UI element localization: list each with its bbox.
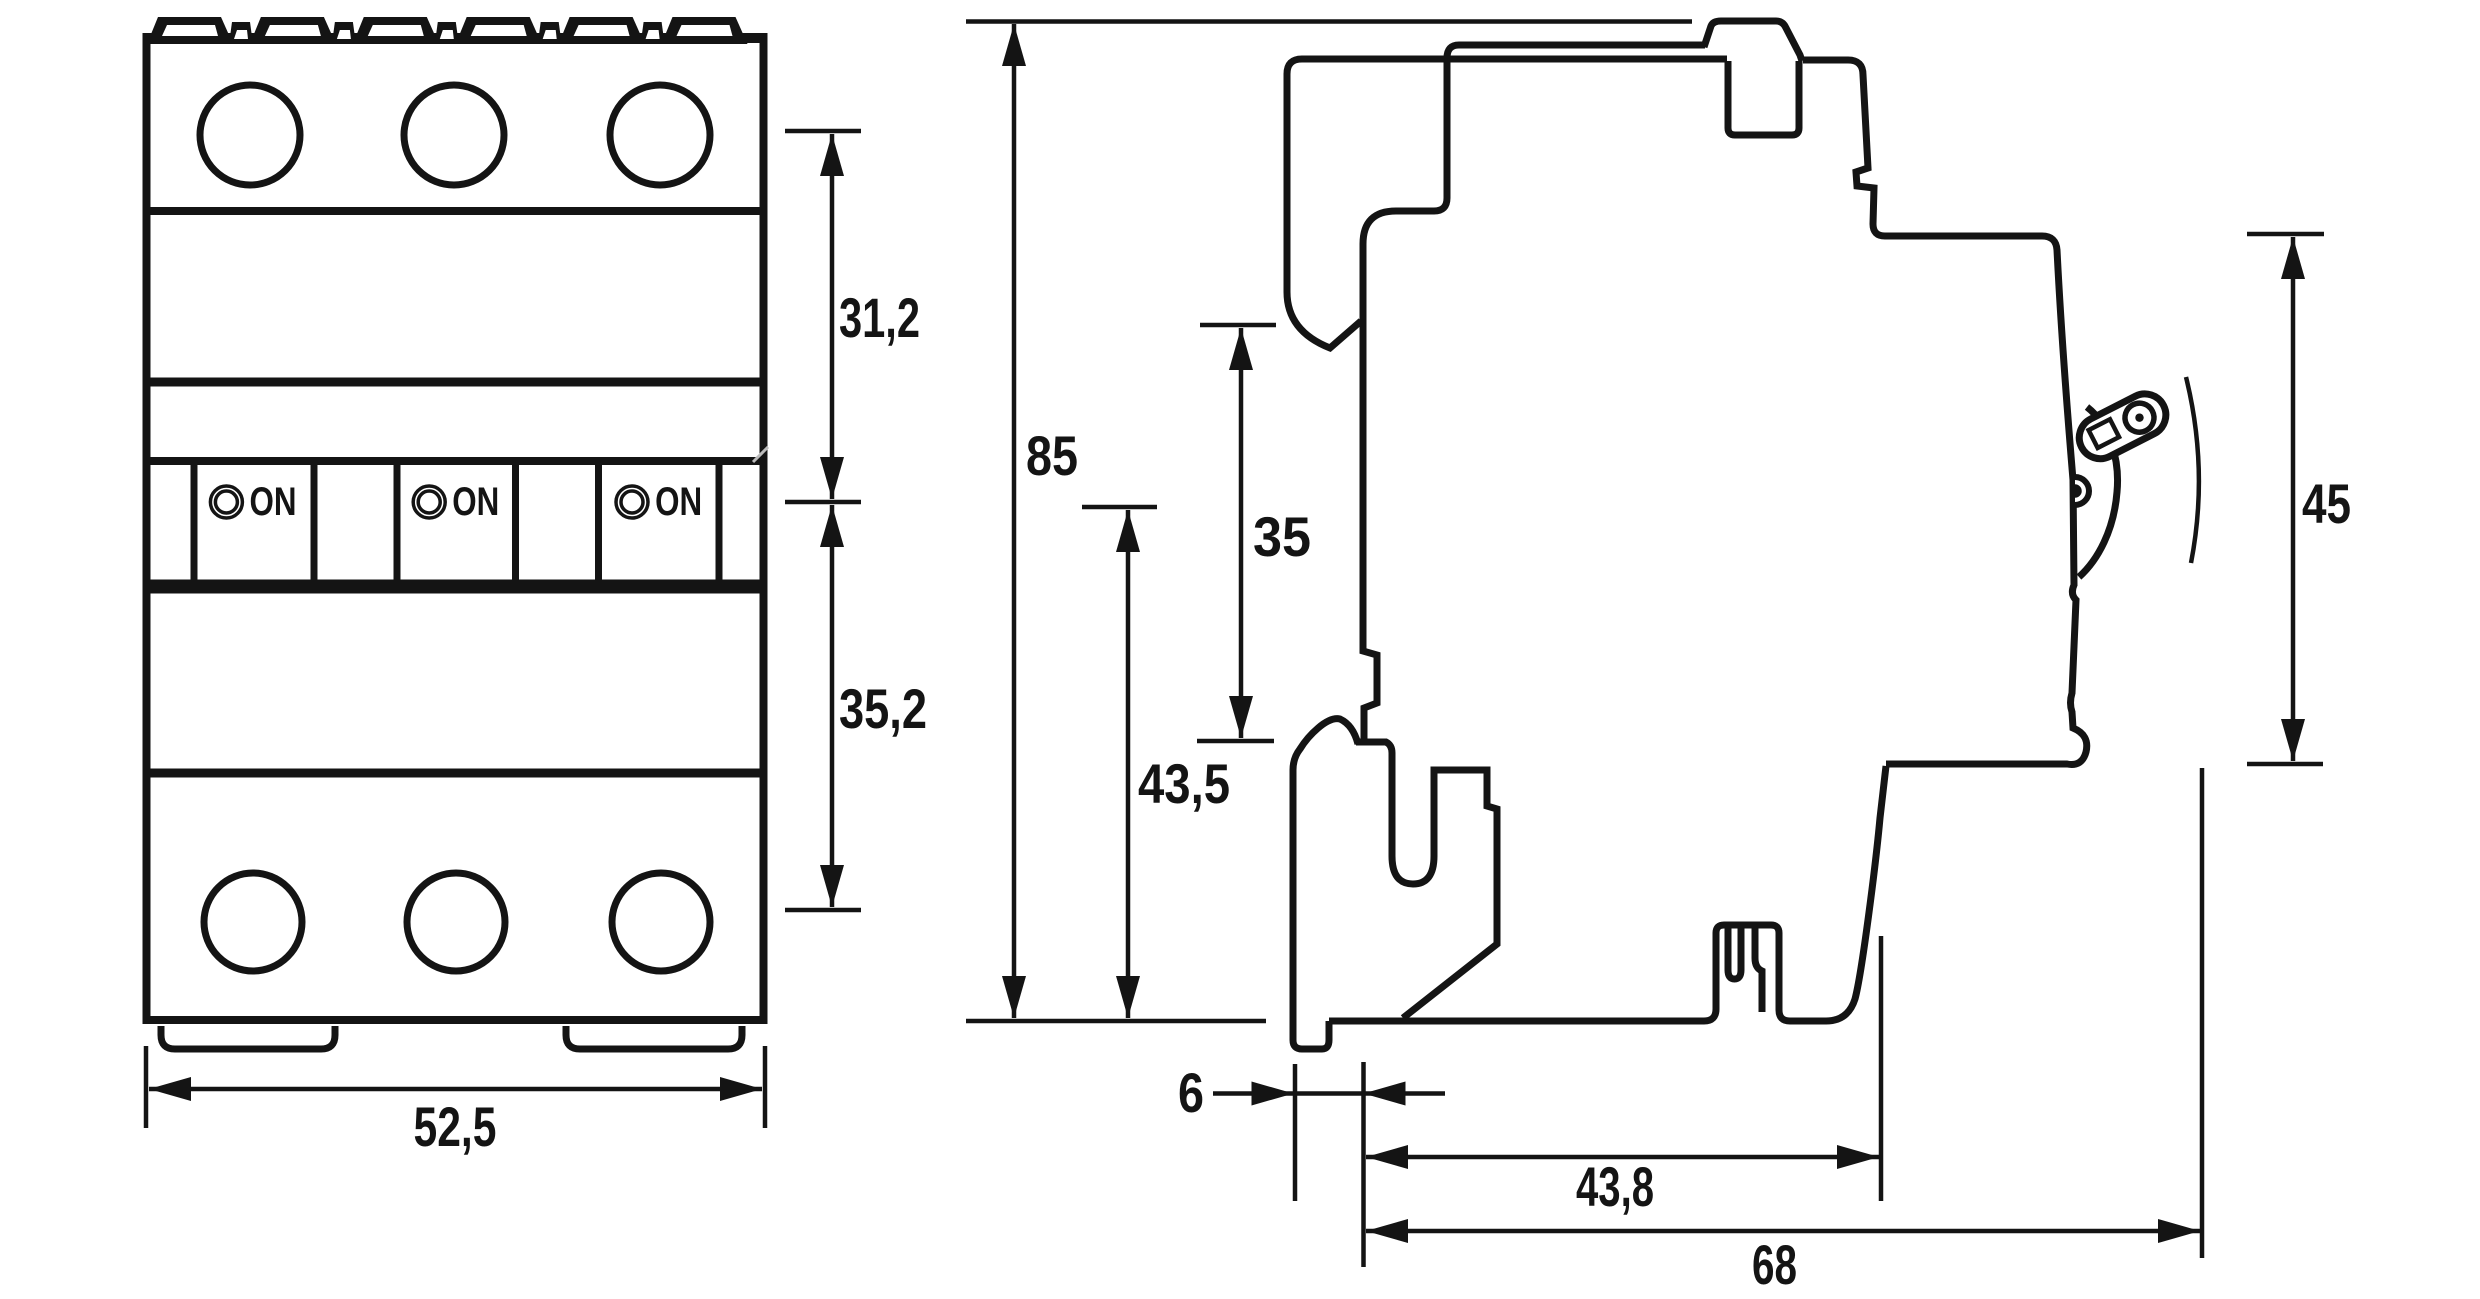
svg-text:35,2: 35,2: [839, 677, 927, 740]
svg-text:85: 85: [1026, 424, 1078, 487]
svg-text:43,8: 43,8: [1576, 1155, 1654, 1218]
svg-text:ON: ON: [655, 480, 702, 524]
svg-text:ON: ON: [452, 480, 499, 524]
svg-text:31,2: 31,2: [839, 286, 920, 349]
svg-text:ON: ON: [250, 480, 297, 524]
svg-text:6: 6: [1178, 1061, 1204, 1124]
svg-text:68: 68: [1752, 1233, 1797, 1296]
svg-text:35: 35: [1253, 505, 1311, 568]
svg-text:52,5: 52,5: [414, 1095, 497, 1158]
svg-text:45: 45: [2302, 472, 2351, 535]
svg-text:43,5: 43,5: [1138, 752, 1230, 815]
